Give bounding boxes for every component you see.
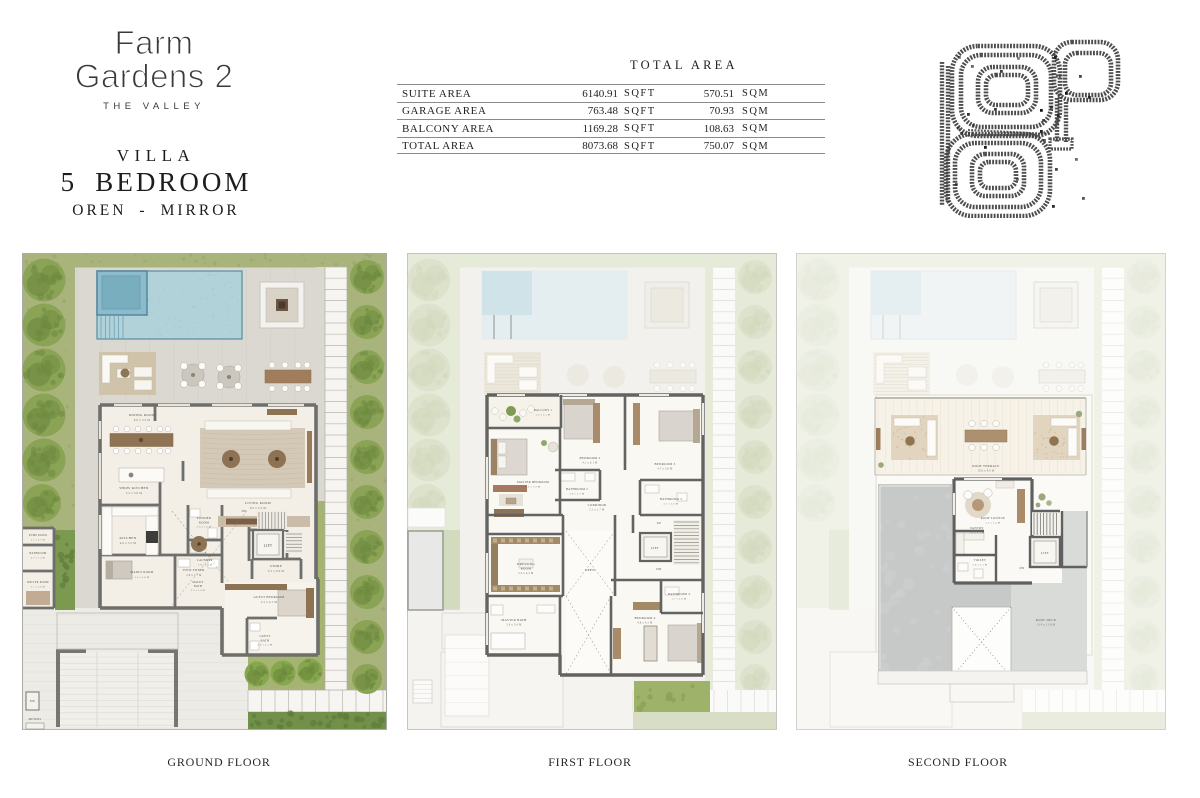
svg-text:ENTI FOYER: ENTI FOYER xyxy=(183,568,205,572)
svg-text:2.1 x 2.6 M: 2.1 x 2.6 M xyxy=(31,587,45,589)
svg-text:DINING ROOM: DINING ROOM xyxy=(129,413,155,417)
svg-text:3.3 x 2.6 M: 3.3 x 2.6 M xyxy=(135,576,150,579)
svg-text:GUEST: GUEST xyxy=(259,634,270,638)
svg-text:9.0 x 3.2 M: 9.0 x 3.2 M xyxy=(134,419,150,422)
svg-text:UP: UP xyxy=(242,509,247,513)
svg-text:5.1 x 1.7 M: 5.1 x 1.7 M xyxy=(589,509,605,512)
svg-text:BEDROOM 3: BEDROOM 3 xyxy=(654,462,675,466)
svg-text:BATH: BATH xyxy=(194,585,203,588)
svg-text:13.6 x 4.0 M: 13.6 x 4.0 M xyxy=(978,470,995,473)
svg-text:Farm: Farm xyxy=(115,24,194,61)
svg-text:ROOF TERRACE: ROOF TERRACE xyxy=(972,464,999,468)
svg-text:2.1 x 2.6 M: 2.1 x 2.6 M xyxy=(664,503,679,506)
svg-text:MAID'S: MAID'S xyxy=(192,581,203,584)
svg-text:Gardens 2: Gardens 2 xyxy=(75,58,234,95)
svg-text:5.2 x 7.0 M: 5.2 x 7.0 M xyxy=(526,486,541,489)
svg-text:4.6 x 3.5 M: 4.6 x 3.5 M xyxy=(120,542,136,545)
svg-text:ROOF DECK: ROOF DECK xyxy=(1036,618,1057,622)
svg-text:5.2 x 5.4 M: 5.2 x 5.4 M xyxy=(986,522,1001,525)
svg-text:LAUNDRY: LAUNDRY xyxy=(197,558,214,562)
svg-text:5.2 x 3.0 M: 5.2 x 3.0 M xyxy=(126,492,142,495)
svg-text:METERS: METERS xyxy=(29,718,42,721)
svg-text:LIFT: LIFT xyxy=(264,544,273,548)
svg-text:LIFT: LIFT xyxy=(1041,551,1049,555)
svg-text:2.1 x 0.7 M: 2.1 x 0.7 M xyxy=(31,540,45,542)
svg-text:STORE: STORE xyxy=(270,564,282,568)
svg-text:5.2 x 4.2 M: 5.2 x 4.2 M xyxy=(518,572,534,575)
svg-text:2.6 x 2.1 M: 2.6 x 2.1 M xyxy=(570,493,585,496)
svg-text:1.6 x 1.6 M: 1.6 x 1.6 M xyxy=(197,526,212,529)
svg-text:SHOW KITCHEN: SHOW KITCHEN xyxy=(119,486,148,490)
svg-text:CORRIDOR: CORRIDOR xyxy=(588,503,607,507)
svg-text:PUMP ROOM: PUMP ROOM xyxy=(29,534,47,537)
svg-text:LIFT: LIFT xyxy=(651,546,660,550)
svg-text:2.6 x 2.1 M: 2.6 x 2.1 M xyxy=(973,564,988,567)
svg-text:2.9 x 1.7 M: 2.9 x 1.7 M xyxy=(186,574,202,577)
svg-text:DRESSING: DRESSING xyxy=(517,562,535,566)
svg-text:ROOF LOUNGE: ROOF LOUNGE xyxy=(981,516,1005,520)
svg-text:2.1 x 1.3 M: 2.1 x 1.3 M xyxy=(31,558,45,560)
svg-text:BATHROOM 3: BATHROOM 3 xyxy=(660,497,682,501)
svg-text:1.6 x 2.3 M: 1.6 x 2.3 M xyxy=(198,564,213,567)
svg-text:BATHROOM: BATHROOM xyxy=(30,552,47,555)
svg-text:ROOM: ROOM xyxy=(199,521,209,525)
svg-text:OPEN: OPEN xyxy=(585,568,595,572)
svg-text:BATHROOM 4: BATHROOM 4 xyxy=(668,592,690,596)
svg-text:5.0 x 3.6 M: 5.0 x 3.6 M xyxy=(506,624,522,627)
svg-text:POWDER: POWDER xyxy=(197,516,211,520)
svg-text:3.5 x 0.9 M: 3.5 x 0.9 M xyxy=(268,570,284,573)
svg-text:TOILET: TOILET xyxy=(974,558,986,562)
svg-text:UP: UP xyxy=(657,521,662,525)
svg-text:MAID'S ROOM: MAID'S ROOM xyxy=(130,570,153,574)
svg-text:THE VALLEY: THE VALLEY xyxy=(103,101,205,112)
svg-text:5.2 x 1.3 M: 5.2 x 1.3 M xyxy=(536,414,551,417)
svg-text:MASTER BATH: MASTER BATH xyxy=(501,618,527,622)
svg-text:1.7 x 2.6 M: 1.7 x 2.6 M xyxy=(672,598,687,601)
svg-text:BEDROOM 4: BEDROOM 4 xyxy=(634,616,655,620)
svg-text:BEDROOM 2: BEDROOM 2 xyxy=(579,456,600,460)
svg-text:DN: DN xyxy=(1020,566,1025,570)
svg-text:4.7 x 3.6 M: 4.7 x 3.6 M xyxy=(657,468,673,471)
svg-text:4.6 x 4.2 M: 4.6 x 4.2 M xyxy=(637,622,653,625)
svg-text:BATHROOM 2: BATHROOM 2 xyxy=(566,487,588,491)
svg-text:2.9 x 2.1 M: 2.9 x 2.1 M xyxy=(258,644,273,647)
svg-text:BIN: BIN xyxy=(30,700,35,703)
svg-text:DN: DN xyxy=(656,567,662,571)
svg-text:GUEST BEDROOM: GUEST BEDROOM xyxy=(254,595,285,599)
svg-text:BALCONY 1: BALCONY 1 xyxy=(534,409,553,412)
svg-text:ROOM: ROOM xyxy=(521,567,532,571)
svg-text:2.3 x 1.6 M: 2.3 x 1.6 M xyxy=(191,590,205,592)
svg-text:LIVING ROOM: LIVING ROOM xyxy=(245,501,271,505)
svg-text:13 9 x 12.8 M: 13 9 x 12.8 M xyxy=(1037,624,1056,627)
svg-text:PANTRY: PANTRY xyxy=(970,526,984,530)
svg-text:BATH: BATH xyxy=(260,639,270,643)
svg-text:MASTER BEDROOM: MASTER BEDROOM xyxy=(517,480,549,484)
svg-text:DRIVER ROOM: DRIVER ROOM xyxy=(27,581,49,584)
svg-text:KITCHEN: KITCHEN xyxy=(120,536,137,540)
svg-text:5.2 x 4.1 M: 5.2 x 4.1 M xyxy=(261,601,277,604)
svg-text:9.0 x 5.5 M: 9.0 x 5.5 M xyxy=(250,507,266,510)
svg-text:4.1 x 4.1 M: 4.1 x 4.1 M xyxy=(582,462,598,465)
